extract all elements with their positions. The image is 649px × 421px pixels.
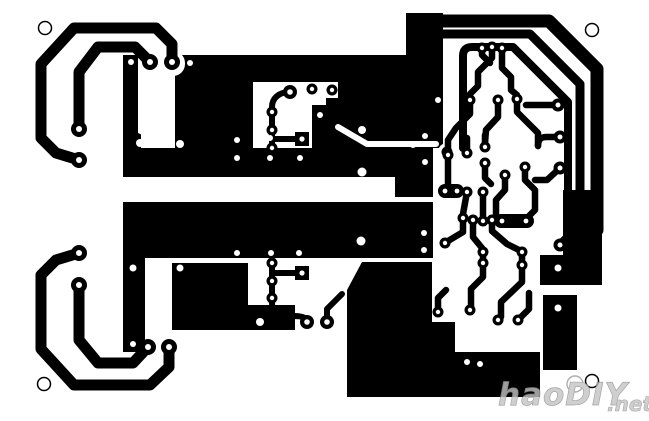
- pad-hole: [520, 250, 524, 254]
- pad-hole: [299, 270, 304, 275]
- copper-pour: [123, 55, 138, 136]
- pad-hole: [465, 151, 469, 155]
- pad-hole: [270, 296, 274, 300]
- pad-hole: [468, 308, 472, 312]
- pcb-screenshot: haoDIY .net: [0, 0, 649, 421]
- via-hole: [267, 155, 273, 161]
- pad-hole: [520, 263, 524, 267]
- via-hole: [128, 59, 134, 65]
- pad-hole: [270, 146, 274, 150]
- via-hole: [435, 97, 441, 103]
- pad-hole: [523, 165, 527, 169]
- pad-hole: [166, 344, 172, 350]
- mounting-hole: [38, 378, 51, 391]
- pad-hole: [310, 87, 314, 91]
- via-hole: [555, 265, 562, 272]
- pad-hole: [145, 344, 151, 350]
- slot-pad: [438, 184, 464, 198]
- pad-hole: [481, 219, 485, 223]
- pad-hole: [468, 98, 472, 102]
- slot-hole: [524, 219, 529, 224]
- slot-hole: [443, 189, 448, 194]
- via-hole: [187, 60, 193, 66]
- slot-hole: [455, 189, 460, 194]
- pad-hole: [490, 45, 494, 49]
- pad-hole: [287, 89, 293, 95]
- pad-hole: [483, 145, 487, 149]
- mounting-hole: [586, 24, 599, 37]
- copper-pour: [340, 55, 443, 102]
- pad-hole: [500, 46, 504, 50]
- pad-hole: [496, 318, 500, 322]
- pad-hole: [76, 250, 82, 256]
- watermark-suffix: .net: [607, 392, 649, 416]
- pcb-artwork: haoDIY .net: [0, 0, 649, 421]
- etch-cutout: [141, 63, 171, 148]
- via-hole: [130, 265, 137, 272]
- pad-hole: [461, 216, 465, 220]
- via-hole: [422, 159, 428, 165]
- via-hole: [136, 139, 144, 147]
- pad-hole: [270, 110, 274, 114]
- pad-hole: [481, 261, 485, 265]
- pad-hole: [76, 157, 82, 163]
- via-hole: [176, 140, 184, 148]
- pad-hole: [503, 173, 507, 177]
- pad-hole: [481, 250, 485, 254]
- pad-hole: [558, 135, 563, 140]
- pad-hole: [496, 98, 500, 102]
- pad-hole: [330, 88, 334, 92]
- watermark: haoDIY .net: [498, 376, 649, 416]
- pad-hole: [481, 190, 485, 194]
- copper-pour: [432, 322, 455, 352]
- pad-hole: [76, 126, 82, 132]
- pad-hole: [443, 241, 447, 245]
- via-hole: [421, 230, 427, 236]
- pad-hole: [436, 310, 440, 314]
- pad-hole: [465, 190, 469, 194]
- via-hole: [421, 247, 427, 253]
- via-hole: [268, 250, 274, 256]
- via-hole: [296, 250, 302, 256]
- pad-hole: [515, 97, 519, 101]
- pad-hole: [471, 218, 475, 222]
- via-hole: [130, 341, 136, 347]
- copper-pour: [123, 148, 433, 177]
- pad-hole: [169, 59, 175, 65]
- mounting-hole: [39, 22, 52, 35]
- via-hole: [358, 126, 366, 134]
- copper-pour: [123, 202, 145, 352]
- copper-pour: [395, 148, 433, 197]
- pad-hole: [299, 136, 304, 141]
- via-hole: [234, 155, 240, 161]
- pad-hole: [490, 218, 494, 222]
- copper-pour: [347, 262, 432, 397]
- pad-hole: [558, 166, 563, 171]
- copper-pour: [123, 202, 433, 258]
- pad-hole: [480, 46, 484, 50]
- slot-hole: [500, 219, 505, 224]
- via-hole: [555, 305, 562, 312]
- via-hole: [267, 135, 273, 141]
- via-hole: [234, 137, 240, 143]
- pad-hole: [483, 161, 487, 165]
- pad-hole: [147, 59, 153, 65]
- pad-hole: [324, 319, 330, 325]
- pad-hole: [558, 243, 563, 248]
- pad-hole: [76, 282, 82, 288]
- via-hole: [422, 133, 428, 139]
- copper-pour: [172, 263, 248, 330]
- via-hole: [297, 155, 303, 161]
- via-hole: [358, 168, 367, 177]
- via-hole: [177, 265, 184, 272]
- pad-hole: [446, 153, 450, 157]
- via-hole: [256, 318, 264, 326]
- pad-hole: [270, 128, 274, 132]
- via-hole: [410, 142, 416, 148]
- pad-hole: [270, 261, 274, 265]
- via-hole: [477, 361, 483, 367]
- pad-hole: [304, 319, 310, 325]
- pad-hole: [516, 318, 520, 322]
- via-hole: [317, 112, 323, 118]
- via-hole: [464, 359, 470, 365]
- pad-hole: [270, 279, 274, 283]
- pad-hole: [556, 103, 561, 108]
- via-hole: [357, 237, 366, 246]
- via-hole: [234, 250, 240, 256]
